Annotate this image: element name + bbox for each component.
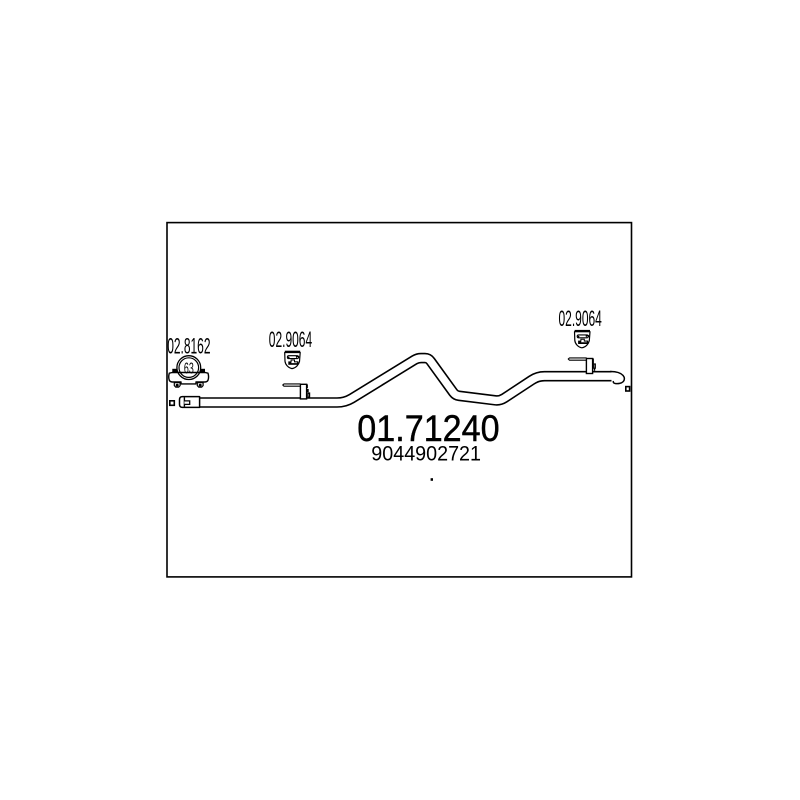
svg-text:63: 63 [184,360,194,377]
svg-text:02.9064: 02.9064 [559,306,602,331]
svg-text:9044902721: 9044902721 [371,443,481,466]
svg-text:02.9064: 02.9064 [269,327,312,352]
svg-text:02.8162: 02.8162 [167,334,210,359]
